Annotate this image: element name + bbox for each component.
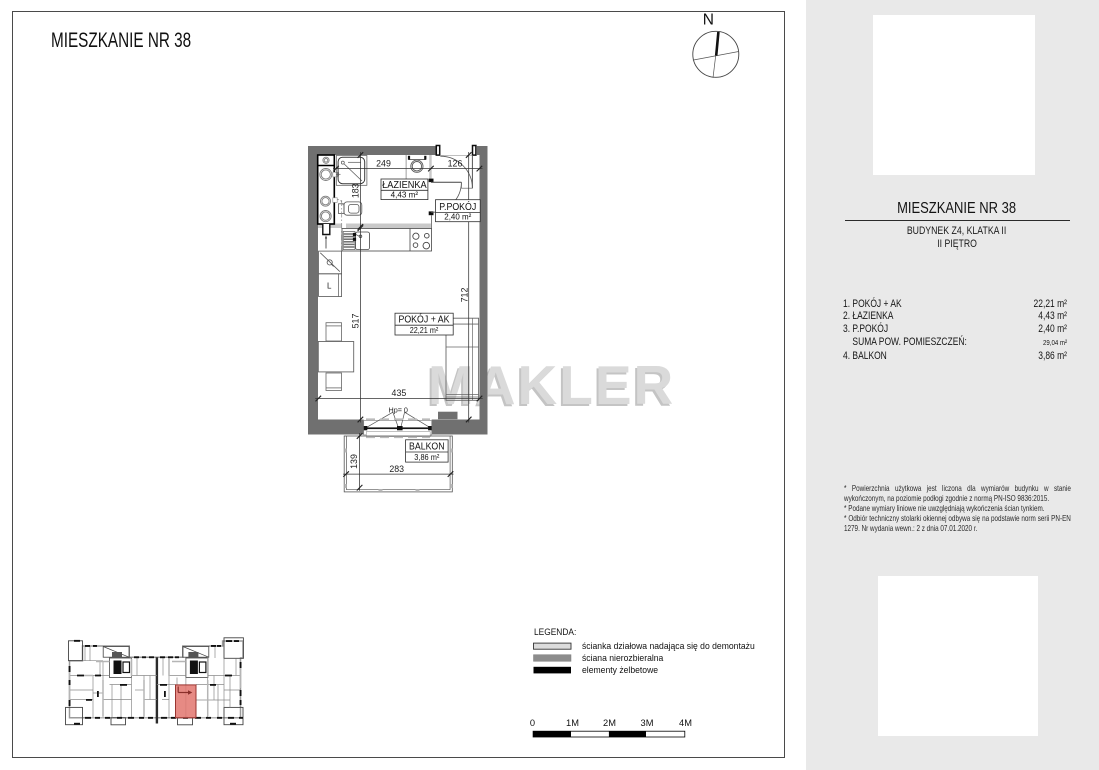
svg-text:POKÓJ + AK: POKÓJ + AK <box>399 313 450 326</box>
svg-text:4,43 m²: 4,43 m² <box>391 190 419 200</box>
svg-text:L: L <box>327 282 332 291</box>
svg-text:283: 283 <box>389 464 404 474</box>
svg-text:Hp= 0: Hp= 0 <box>389 405 408 414</box>
svg-text:N: N <box>703 12 714 29</box>
svg-text:517: 517 <box>351 314 361 329</box>
svg-text:712: 712 <box>460 288 470 303</box>
svg-text:139: 139 <box>349 454 359 469</box>
svg-text:435: 435 <box>392 388 407 398</box>
svg-text:2,40 m²: 2,40 m² <box>444 212 471 222</box>
svg-text:22,21 m²: 22,21 m² <box>410 325 439 335</box>
svg-text:BALKON: BALKON <box>409 442 445 453</box>
svg-text:3,86 m²: 3,86 m² <box>414 452 439 462</box>
svg-text:183: 183 <box>351 183 361 198</box>
svg-text:249: 249 <box>376 158 391 168</box>
svg-text:126: 126 <box>448 158 463 168</box>
